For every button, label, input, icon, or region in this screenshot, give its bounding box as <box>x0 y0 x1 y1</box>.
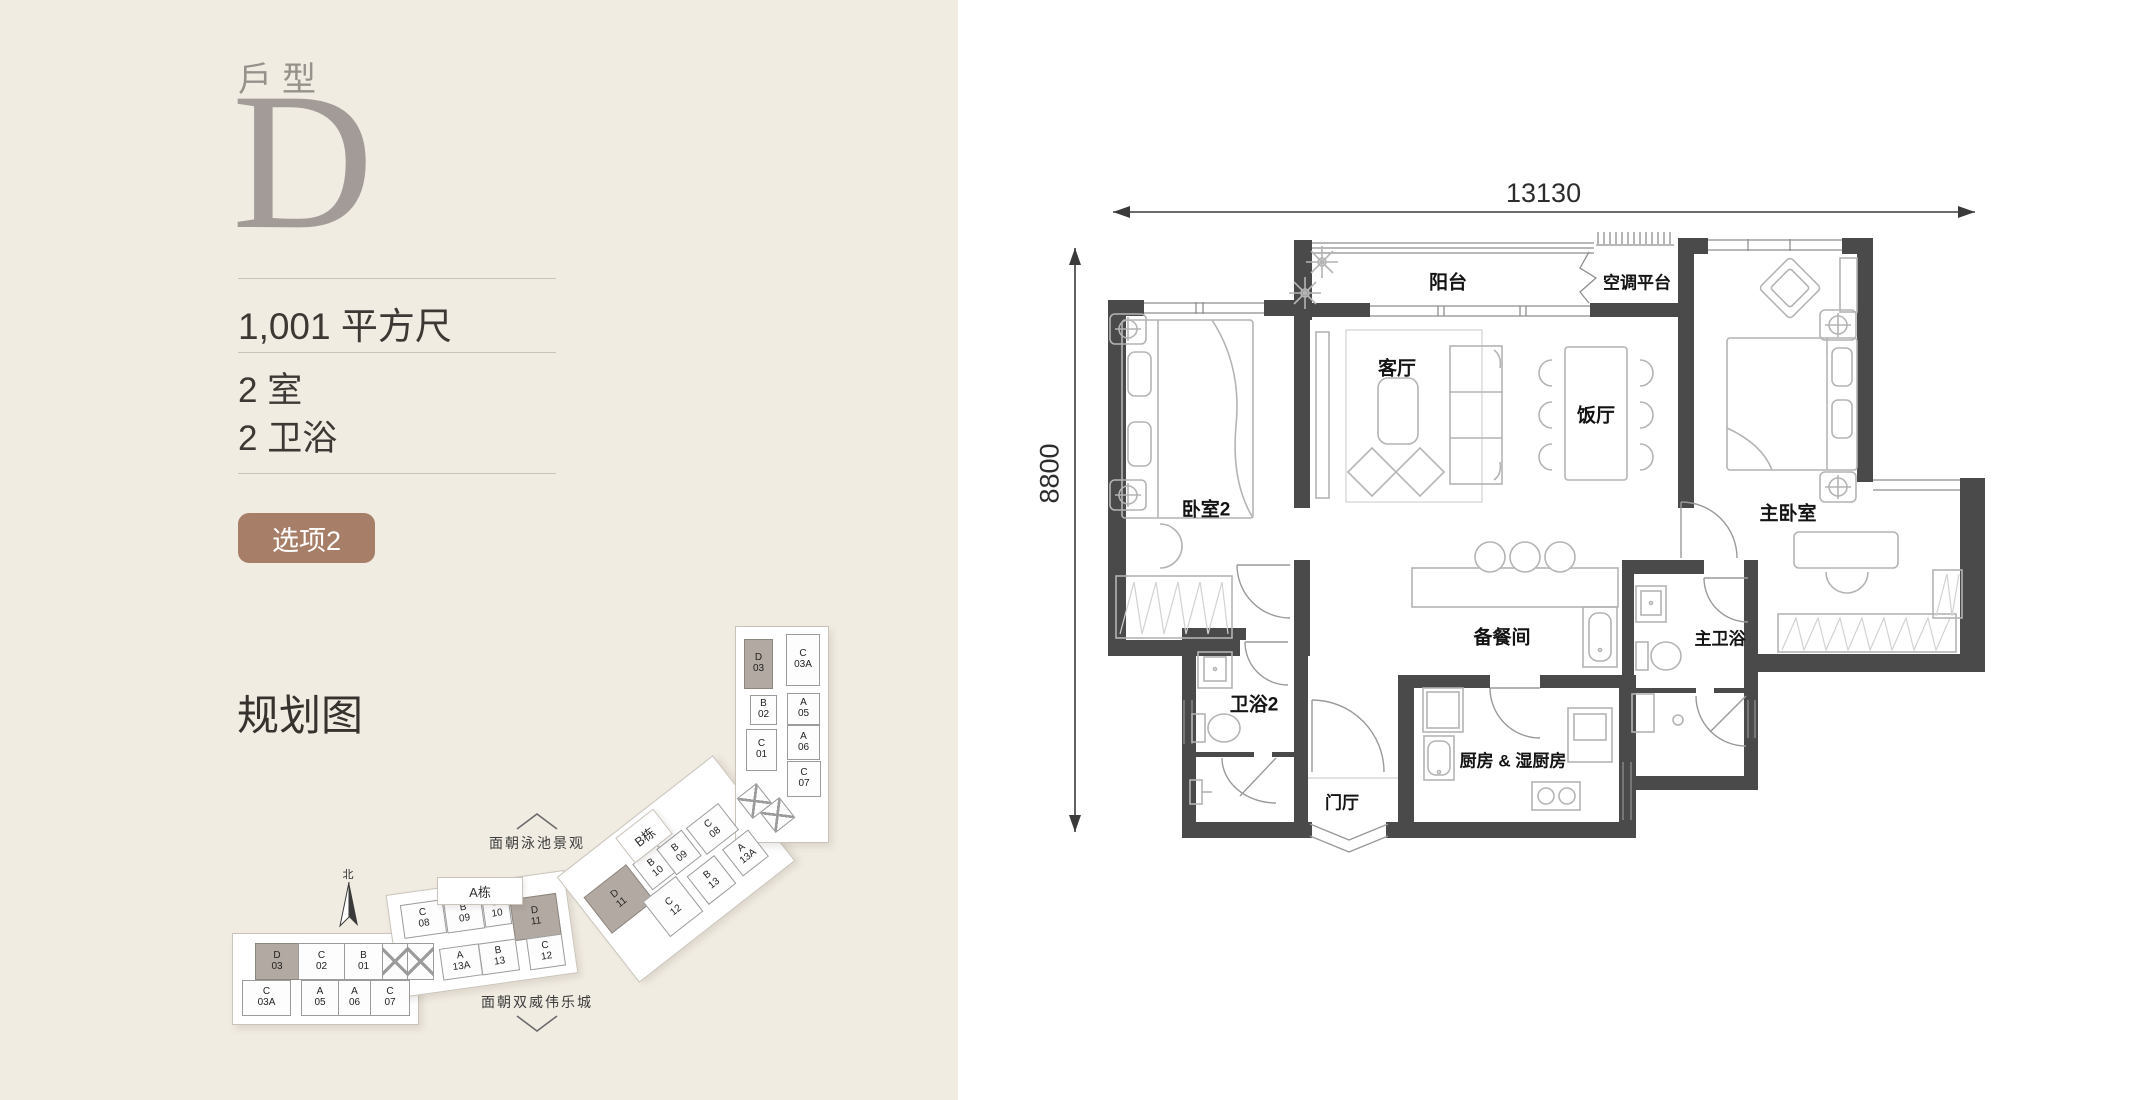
unit-bathrooms: 2 卫浴 <box>238 410 337 461</box>
site-plan-unit-B13: B13 <box>478 939 520 976</box>
north-label: 北 <box>343 869 354 881</box>
divider <box>238 473 556 474</box>
annotation-pool-view: 面朝泳池景观 <box>462 812 612 853</box>
site-plan-unit-B01: B01 <box>344 943 383 980</box>
site-plan-unit-C01: C01 <box>746 729 777 771</box>
option-badge[interactable]: 选项2 <box>238 513 375 563</box>
site-plan-unit-C07: C07 <box>370 980 410 1016</box>
room-label-living-room: 客厅 <box>1378 354 1416 381</box>
site-plan-unit-C08: C08 <box>400 899 447 939</box>
room-label-foyer: 门厅 <box>1325 789 1359 814</box>
site-plan-unit-C02: C02 <box>298 943 345 980</box>
unit-bedrooms: 2 室 <box>238 362 302 413</box>
room-label-pantry: 备餐间 <box>1473 623 1530 650</box>
left-panel: 戶型 D 1,001 平方尺 2 室 2 卫浴 选项2 规划图 D03C02B0… <box>0 0 958 1100</box>
room-label-balcony: 阳台 <box>1429 268 1467 295</box>
room-label-dining-room: 饭厅 <box>1577 401 1615 428</box>
annotation-city-view-text: 面朝双威伟乐城 <box>481 994 593 1010</box>
dimension-width: 13130 <box>1506 178 1581 209</box>
site-plan-unit-C03A: C03A <box>242 980 291 1016</box>
brochure-page: 戶型 D 1,001 平方尺 2 室 2 卫浴 选项2 规划图 D03C02B0… <box>0 0 2140 1100</box>
room-label-ac-platform: 空调平台 <box>1603 269 1671 294</box>
site-plan-unit-B02: B02 <box>750 695 777 725</box>
room-label-kitchen: 厨房 & 湿厨房 <box>1460 747 1567 772</box>
block-a-label: A栋 <box>437 877 523 905</box>
site-plan: D03C02B01C03AA05A06C07C08B09B10D11A13AB1… <box>240 630 880 1070</box>
site-plan-unit-C12: C12 <box>526 934 566 971</box>
site-plan-unit-A06: A06 <box>338 980 371 1016</box>
site-plan-unit-A13A: A13A <box>439 943 483 980</box>
furniture <box>1110 246 1962 810</box>
site-plan-core <box>382 943 408 980</box>
room-label-master-bedroom: 主卧室 <box>1759 499 1816 526</box>
site-plan-unit-A05: A05 <box>301 980 339 1016</box>
chevron-down-icon <box>515 1015 559 1033</box>
site-plan-unit-C03A: C03A <box>786 634 820 686</box>
room-label-bedroom-2: 卧室2 <box>1182 495 1231 522</box>
north-compass: 北 <box>328 866 368 931</box>
room-label-master-bath: 主卫浴 <box>1695 625 1746 650</box>
site-plan-core <box>407 943 434 980</box>
room-label-bath-2: 卫浴2 <box>1230 690 1279 717</box>
site-plan-unit-A06: A06 <box>787 725 820 760</box>
site-plan-unit-D03: D03 <box>744 639 773 689</box>
dimension-height: 8800 <box>1035 443 1066 503</box>
divider <box>238 352 556 353</box>
site-plan-unit-C07: C07 <box>787 761 821 797</box>
compass-needle-icon <box>335 882 361 928</box>
site-plan-unit-D03: D03 <box>255 943 299 980</box>
annotation-city-view: 面朝双威伟乐城 <box>462 992 612 1033</box>
site-plan-unit-A05: A05 <box>787 693 820 725</box>
divider <box>238 278 556 279</box>
unit-type-letter: D <box>232 64 374 260</box>
site-plan-unit-B13: B13 <box>687 855 737 905</box>
floorplan-drawing <box>1040 180 2040 920</box>
annotation-pool-view-text: 面朝泳池景观 <box>489 835 585 851</box>
chevron-up-icon <box>515 812 559 830</box>
unit-area: 1,001 平方尺 <box>238 296 452 350</box>
